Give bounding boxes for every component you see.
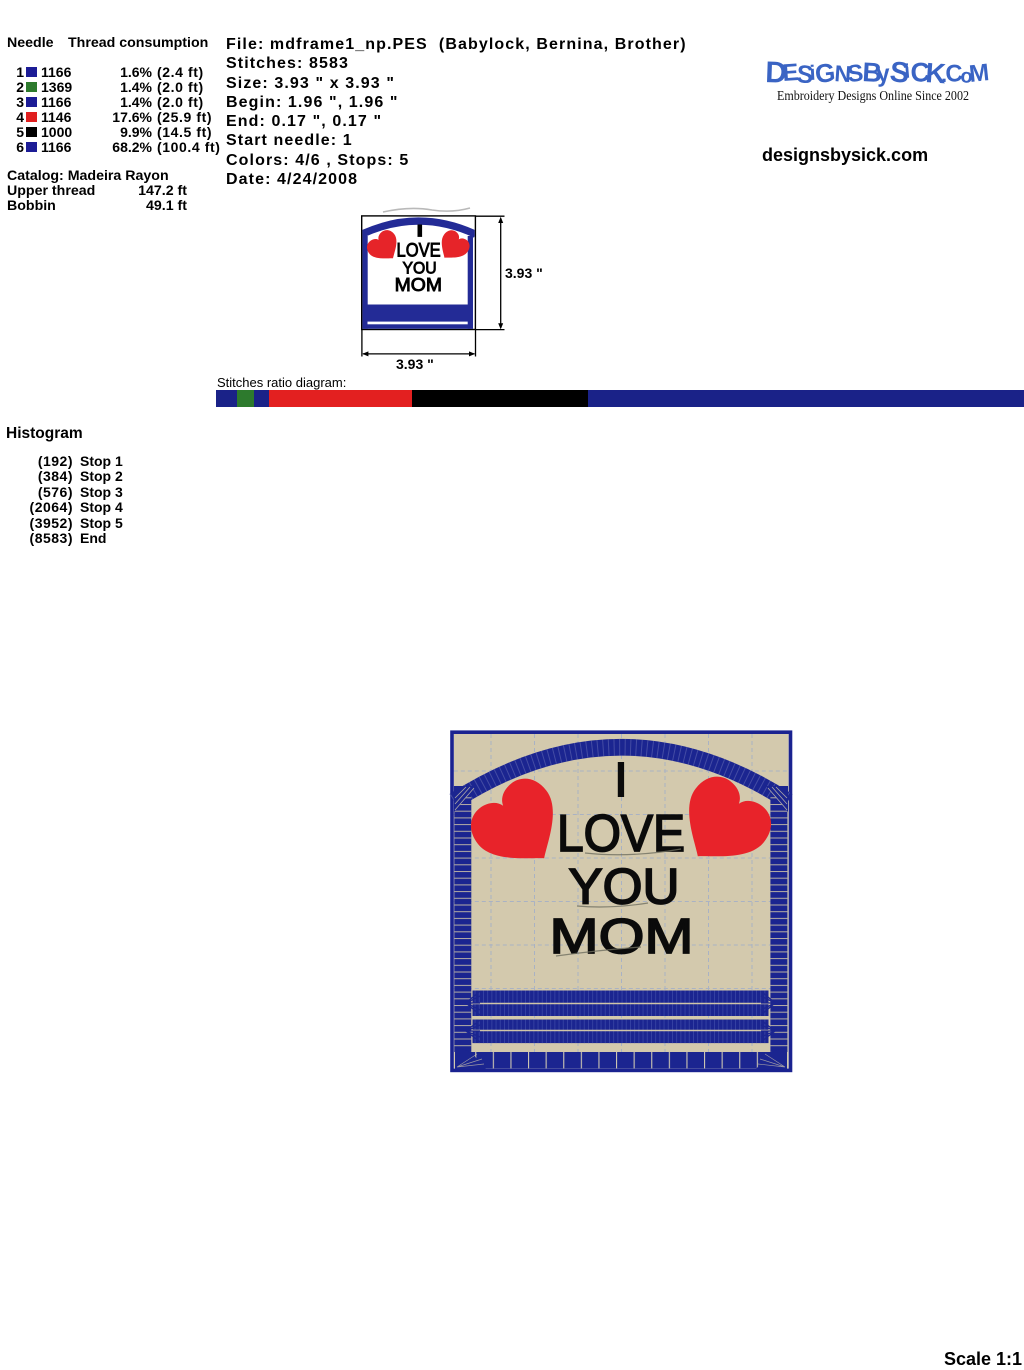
svg-text:G: G: [813, 57, 836, 89]
svg-text:M: M: [968, 59, 991, 88]
svg-text:S: S: [846, 60, 864, 88]
svg-text:MOM: MOM: [395, 275, 442, 295]
svg-text:Embroidery Designs Online Sinc: Embroidery Designs Online Since 2002: [777, 89, 969, 104]
svg-text:MOM: MOM: [550, 910, 694, 964]
